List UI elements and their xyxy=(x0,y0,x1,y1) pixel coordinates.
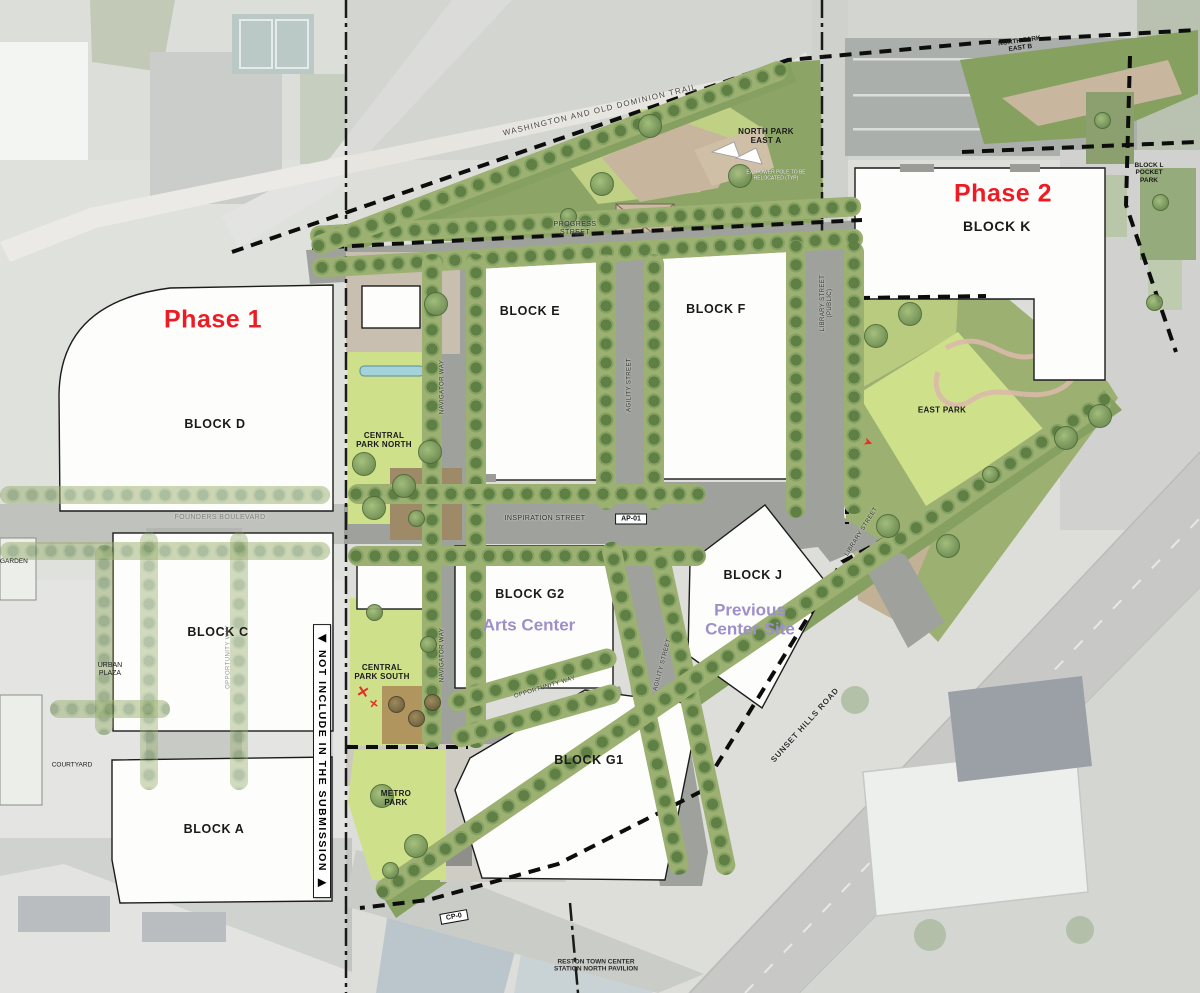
park-tree xyxy=(936,534,960,558)
ap-01-badge: AP-01 xyxy=(615,514,647,525)
park-tree xyxy=(590,172,614,196)
tree-row-agility-east xyxy=(644,254,664,510)
park-tree xyxy=(876,514,900,538)
tree-row-founders-north xyxy=(0,486,330,504)
block-e-building xyxy=(468,256,602,480)
block-d-building xyxy=(59,285,333,511)
park-tree xyxy=(370,784,394,808)
park-tree xyxy=(362,496,386,520)
orchard-tree xyxy=(424,694,441,711)
park-tree xyxy=(352,452,376,476)
tree-row-agility-west xyxy=(596,254,616,510)
tree-row-opportunity-west-1 xyxy=(140,532,158,790)
park-tree xyxy=(1094,112,1111,129)
park-tree xyxy=(366,604,383,621)
orchard-tree xyxy=(408,710,425,727)
park-tree xyxy=(418,440,442,464)
park-tree xyxy=(1146,294,1163,311)
tree-row-founders-south xyxy=(0,542,330,560)
site-plan-map: Phase 1 Phase 2 BLOCK D BLOCK C BLOCK A … xyxy=(0,0,1200,993)
park-tree xyxy=(728,164,752,188)
tree-row-opportunity-west-2 xyxy=(230,532,248,790)
tree-row-library-east xyxy=(844,242,864,514)
tree-row-courtyard xyxy=(50,700,170,718)
park-tree xyxy=(392,474,416,498)
park-tree xyxy=(420,636,437,653)
park-tree xyxy=(1152,194,1169,211)
park-tree xyxy=(638,114,662,138)
park-tree xyxy=(1054,426,1078,450)
orchard-tree xyxy=(388,696,405,713)
park-tree xyxy=(560,208,577,225)
park-tree xyxy=(382,862,399,879)
park-tree xyxy=(898,302,922,326)
park-tree xyxy=(864,324,888,348)
block-f-building xyxy=(651,249,793,479)
park-tree xyxy=(982,466,999,483)
park-tree xyxy=(424,292,448,316)
not-included-banner: ◀ NOT INCLUDE IN THE SUBMISSION ▶ xyxy=(313,624,331,898)
park-tree xyxy=(404,834,428,858)
central-park-north-building xyxy=(362,286,420,328)
park-tree xyxy=(408,510,425,527)
tree-row-library-west xyxy=(786,240,806,518)
park-tree xyxy=(1088,404,1112,428)
